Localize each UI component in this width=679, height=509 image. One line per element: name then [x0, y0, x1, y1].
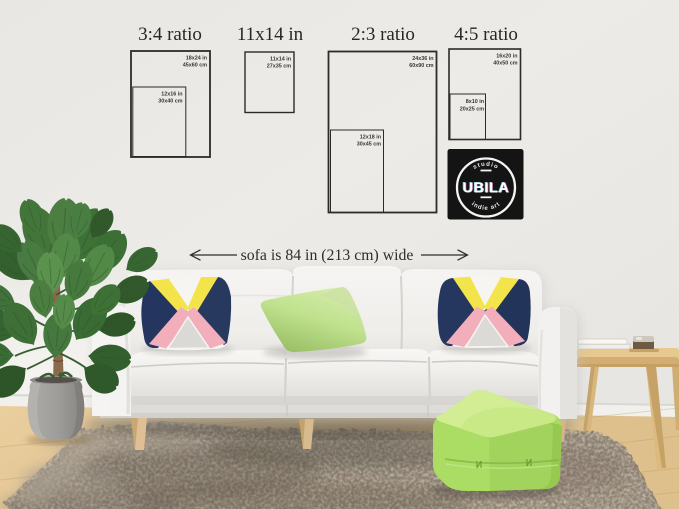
svg-text:18x24 in: 18x24 in — [186, 56, 207, 62]
svg-text:60x90 cm: 60x90 cm — [409, 63, 433, 69]
svg-text:12x16 in: 12x16 in — [161, 92, 182, 98]
svg-text:11x14 in: 11x14 in — [270, 57, 291, 63]
svg-text:UBILA: UBILA — [463, 180, 510, 196]
svg-text:24x36 in: 24x36 in — [412, 56, 433, 62]
svg-text:16x20 in: 16x20 in — [496, 54, 517, 60]
svg-text:3:4 ratio: 3:4 ratio — [138, 24, 202, 45]
svg-text:40x50 cm: 40x50 cm — [493, 61, 517, 67]
svg-text:45x60 cm: 45x60 cm — [183, 63, 207, 69]
svg-text:27x35 cm: 27x35 cm — [267, 64, 291, 70]
svg-text:12x18 in: 12x18 in — [360, 135, 381, 141]
svg-text:2:3 ratio: 2:3 ratio — [351, 24, 415, 45]
svg-text:sofa is 84 in (213 cm) wide: sofa is 84 in (213 cm) wide — [241, 247, 414, 264]
svg-text:8x10 in: 8x10 in — [466, 99, 484, 105]
svg-text:11x14 in: 11x14 in — [237, 24, 304, 45]
svg-text:30x45 cm: 30x45 cm — [357, 142, 381, 148]
svg-text:20x25 cm: 20x25 cm — [460, 107, 484, 113]
svg-text:30x40 cm: 30x40 cm — [158, 99, 182, 105]
svg-text:4:5 ratio: 4:5 ratio — [454, 24, 518, 45]
